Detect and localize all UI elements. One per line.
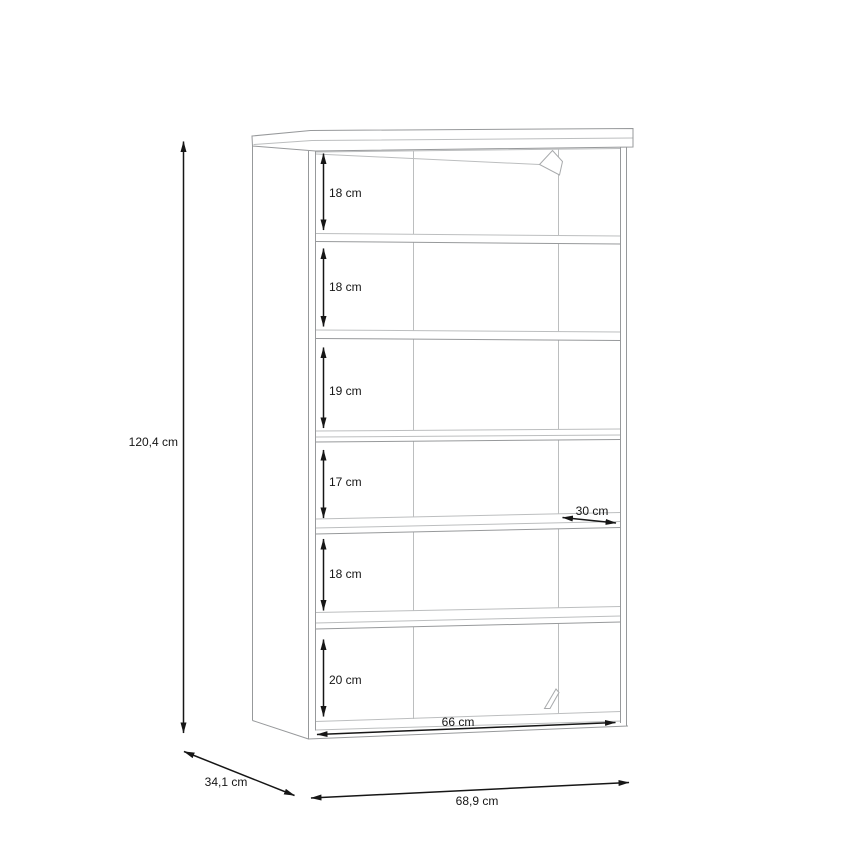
dimension-compartment-1: 18 cm (324, 154, 362, 231)
dimension-overall-width: 68,9 cm (311, 783, 629, 809)
left-panel-bottom-edge (253, 721, 309, 740)
dimension-compartment-2: 18 cm (324, 249, 362, 327)
dimension-compartment-3: 19 cm (324, 348, 362, 429)
left-side-panel (253, 146, 316, 739)
overall-depth-label: 34,1 cm (205, 775, 248, 789)
dimension-interior-width: 66 cm (317, 715, 616, 735)
compartment-3-label: 19 cm (329, 384, 362, 398)
dimension-compartment-6: 20 cm (324, 640, 362, 717)
compartment-6-label: 20 cm (329, 673, 362, 687)
dimension-drawing-page: 120,4 cm 34,1 cm 68,9 cm 66 cm 30 cm 18 … (0, 0, 868, 868)
right-side-panel (621, 148, 627, 727)
dimension-overall-depth: 34,1 cm (184, 752, 295, 796)
top-panel (252, 129, 633, 152)
dimension-compartment-4: 17 cm (324, 450, 362, 518)
shelf-unit (252, 129, 633, 740)
bottom-wall-bracket (545, 689, 560, 709)
shelf-board-1 (316, 234, 621, 245)
shelf-board-2 (316, 330, 621, 341)
dimension-overall-height: 120,4 cm (129, 142, 184, 734)
shelf-board-5 (316, 607, 621, 630)
right-upright-face (621, 148, 627, 727)
compartment-5-label: 18 cm (329, 567, 362, 581)
hanging-rail-edge (316, 154, 540, 165)
overall-width-label: 68,9 cm (456, 794, 499, 808)
compartment-1-label: 18 cm (329, 186, 362, 200)
shelf-board-3 (316, 429, 621, 442)
interior-width-label: 66 cm (442, 715, 475, 729)
dimension-compartment-5: 18 cm (324, 539, 362, 611)
left-upright-face (309, 151, 316, 739)
overall-height-label: 120,4 cm (129, 435, 178, 449)
dimension-drawing-svg: 120,4 cm 34,1 cm 68,9 cm 66 cm 30 cm 18 … (0, 0, 868, 868)
compartment-2-label: 18 cm (329, 280, 362, 294)
top-wall-bracket (540, 151, 563, 176)
shelf-depth-label: 30 cm (576, 504, 609, 518)
compartment-4-label: 17 cm (329, 475, 362, 489)
